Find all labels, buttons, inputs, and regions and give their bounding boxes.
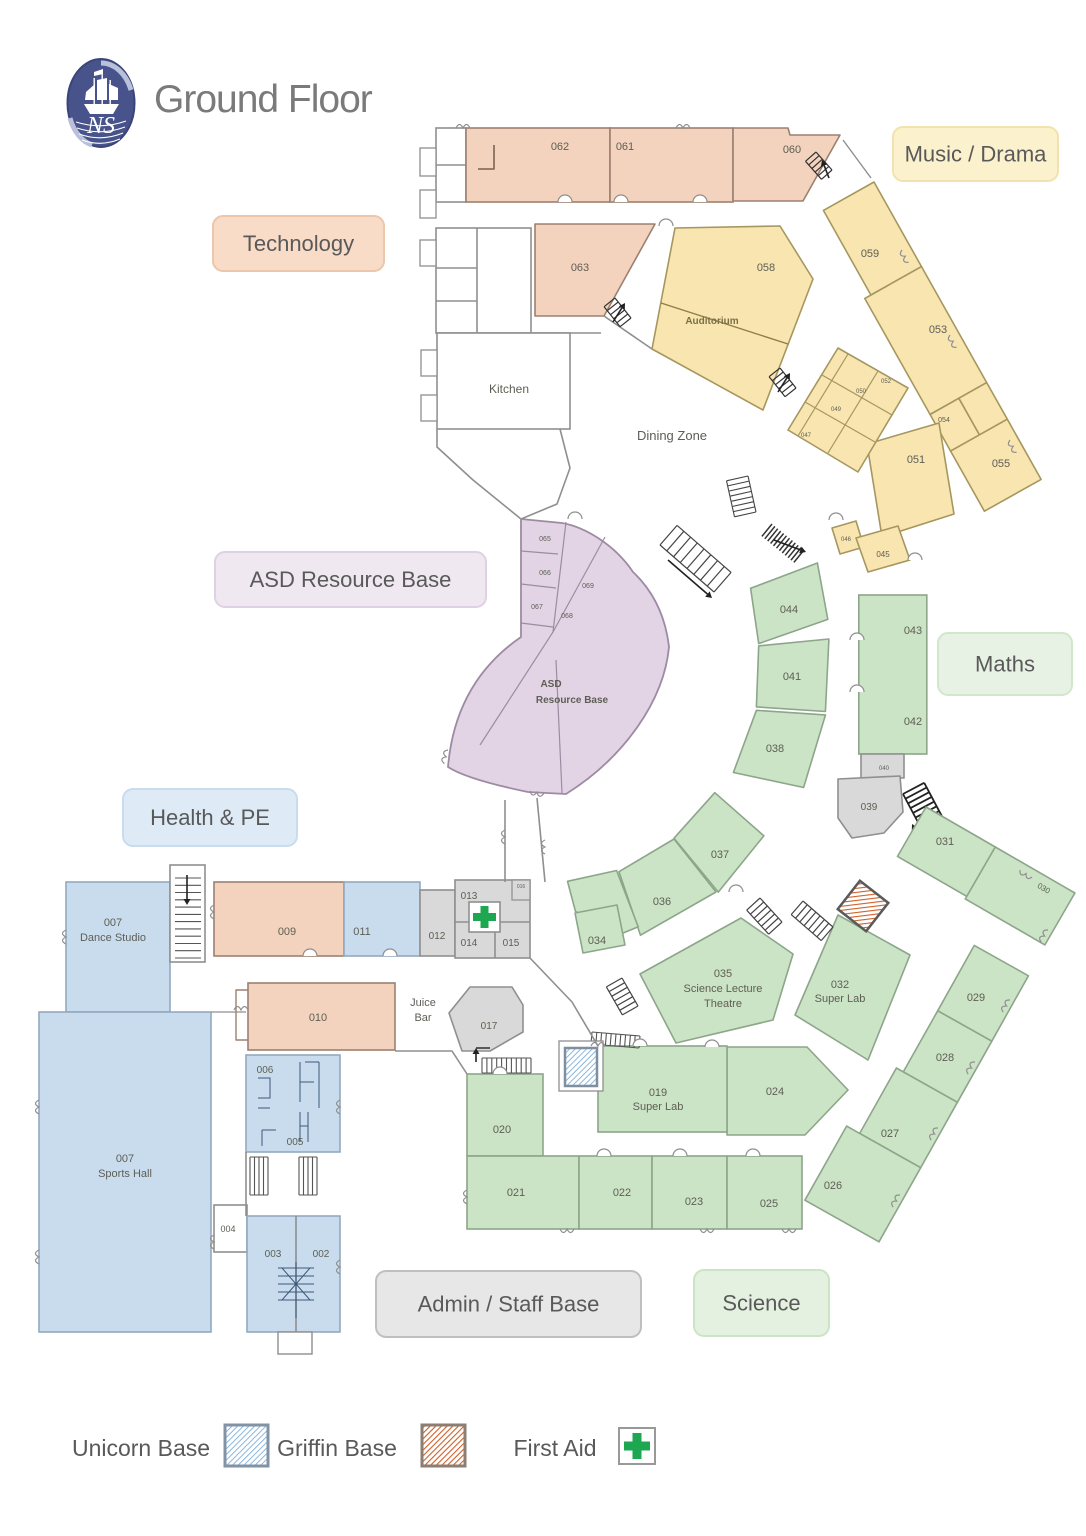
svg-text:047: 047 (801, 433, 812, 439)
svg-text:053: 053 (929, 324, 947, 336)
svg-text:060: 060 (783, 144, 801, 156)
svg-text:Health & PE: Health & PE (150, 805, 270, 830)
svg-text:050: 050 (856, 389, 867, 395)
svg-text:024: 024 (766, 1086, 784, 1098)
svg-text:043: 043 (904, 625, 922, 637)
svg-text:042: 042 (904, 716, 922, 728)
svg-text:067: 067 (531, 604, 543, 611)
svg-text:039: 039 (861, 802, 878, 813)
svg-text:069: 069 (582, 583, 594, 590)
svg-text:065: 065 (539, 536, 551, 543)
svg-text:Griffin Base: Griffin Base (277, 1435, 397, 1461)
svg-text:Unicorn Base: Unicorn Base (72, 1435, 210, 1461)
svg-text:015: 015 (503, 938, 520, 949)
svg-text:061: 061 (616, 141, 634, 153)
svg-text:025: 025 (760, 1198, 778, 1210)
svg-text:032: 032 (831, 979, 849, 991)
svg-text:044: 044 (780, 604, 798, 616)
svg-text:Super Lab: Super Lab (633, 1101, 684, 1113)
svg-text:Technology: Technology (243, 231, 354, 256)
svg-text:011: 011 (353, 926, 371, 938)
svg-text:051: 051 (907, 454, 925, 466)
svg-text:Dining Zone: Dining Zone (637, 428, 707, 443)
svg-text:Juice: Juice (410, 997, 436, 1009)
svg-text:Auditorium: Auditorium (685, 316, 738, 327)
svg-text:Bar: Bar (414, 1012, 431, 1024)
svg-text:037: 037 (711, 849, 729, 861)
svg-text:Admin / Staff Base: Admin / Staff Base (418, 1292, 600, 1317)
svg-text:036: 036 (653, 896, 671, 908)
svg-text:013: 013 (461, 891, 478, 902)
svg-text:052: 052 (881, 379, 892, 385)
svg-text:046: 046 (841, 537, 852, 543)
svg-text:Ground Floor: Ground Floor (154, 78, 373, 121)
svg-text:003: 003 (265, 1249, 282, 1260)
svg-text:ASD: ASD (540, 679, 561, 690)
svg-text:066: 066 (539, 570, 551, 577)
svg-text:012: 012 (429, 931, 446, 942)
svg-text:054: 054 (938, 417, 950, 424)
svg-text:Science Lecture: Science Lecture (684, 983, 763, 995)
svg-text:Science: Science (722, 1291, 800, 1316)
svg-text:Music / Drama: Music / Drama (905, 142, 1048, 167)
svg-text:034: 034 (588, 935, 606, 947)
svg-text:005: 005 (287, 1137, 304, 1148)
svg-text:Theatre: Theatre (704, 998, 742, 1010)
svg-text:009: 009 (278, 926, 296, 938)
svg-text:055: 055 (992, 458, 1010, 470)
svg-text:Sports Hall: Sports Hall (98, 1168, 152, 1180)
svg-text:017: 017 (481, 1021, 498, 1032)
svg-text:006: 006 (257, 1065, 274, 1076)
svg-text:031: 031 (936, 836, 954, 848)
svg-text:041: 041 (783, 671, 801, 683)
svg-text:040: 040 (879, 766, 890, 772)
svg-text:Kitchen: Kitchen (489, 382, 529, 396)
svg-text:002: 002 (313, 1249, 330, 1260)
svg-text:022: 022 (613, 1187, 631, 1199)
svg-text:028: 028 (936, 1052, 954, 1064)
svg-text:Super Lab: Super Lab (815, 993, 866, 1005)
svg-text:020: 020 (493, 1124, 511, 1136)
svg-text:062: 062 (551, 141, 569, 153)
svg-text:016: 016 (517, 884, 526, 890)
svg-text:068: 068 (561, 613, 573, 620)
svg-text:063: 063 (571, 262, 589, 274)
svg-text:Resource Base: Resource Base (536, 695, 609, 706)
svg-text:007: 007 (104, 917, 122, 929)
svg-text:Maths: Maths (975, 652, 1035, 677)
svg-text:ASD Resource Base: ASD Resource Base (250, 567, 452, 592)
svg-text:026: 026 (824, 1180, 842, 1192)
svg-text:038: 038 (766, 743, 784, 755)
svg-text:059: 059 (861, 248, 879, 260)
svg-text:029: 029 (967, 992, 985, 1004)
svg-text:045: 045 (876, 550, 890, 559)
svg-text:019: 019 (649, 1087, 667, 1099)
svg-text:Dance Studio: Dance Studio (80, 932, 146, 944)
svg-text:First Aid: First Aid (513, 1435, 596, 1461)
svg-text:014: 014 (461, 938, 478, 949)
svg-text:023: 023 (685, 1196, 703, 1208)
svg-text:010: 010 (309, 1012, 327, 1024)
svg-text:058: 058 (757, 262, 775, 274)
svg-text:004: 004 (220, 1224, 235, 1234)
svg-text:035: 035 (714, 968, 732, 980)
svg-text:027: 027 (881, 1128, 899, 1140)
svg-text:049: 049 (831, 407, 842, 413)
svg-text:007: 007 (116, 1153, 134, 1165)
svg-text:021: 021 (507, 1187, 525, 1199)
